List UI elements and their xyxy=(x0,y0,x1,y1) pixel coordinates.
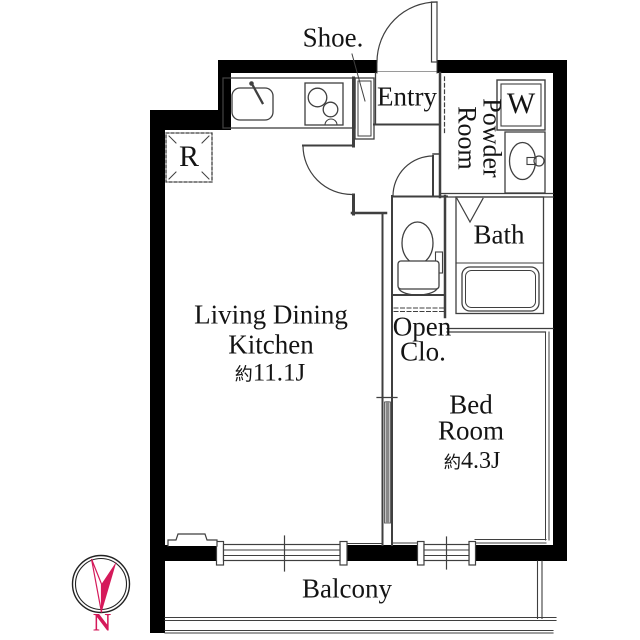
label-open-closet-line2: Clo. xyxy=(400,339,446,366)
bedroom-size-prefix: 約 xyxy=(444,453,461,472)
stove-burner-small xyxy=(323,102,338,117)
label-shoe-closet: Shoe. xyxy=(303,25,364,52)
wall-top-left xyxy=(218,60,377,73)
north-arrow-outline xyxy=(92,559,102,613)
wall-top-right xyxy=(437,60,567,73)
kitchen xyxy=(223,78,355,128)
ldk-door-swing-arc xyxy=(303,146,352,195)
toilet xyxy=(398,222,443,295)
label-entry: Entry xyxy=(377,84,437,111)
floor-plan: Shoe. Entry Powder Room W Bath Living Di… xyxy=(0,0,640,640)
faucet-icon xyxy=(252,84,263,103)
label-refrigerator: R xyxy=(179,142,199,172)
bedroom-window-cap-left xyxy=(418,542,425,566)
label-bedroom-size: 約4.3J xyxy=(444,449,501,473)
bedroom-window-cap-right xyxy=(469,542,476,566)
toilet-bowl xyxy=(402,222,433,264)
ldk-size-prefix: 約 xyxy=(235,365,253,385)
balcony-right-rail xyxy=(538,561,543,619)
ldk-window-cap-right xyxy=(340,542,347,566)
label-north: N xyxy=(93,611,111,636)
ldk-window-body xyxy=(224,545,341,561)
toilet-door-swing-arc xyxy=(393,156,433,196)
sliding-door xyxy=(385,402,391,523)
bathtub xyxy=(462,267,539,311)
label-ldk-line2: Kitchen xyxy=(228,332,313,359)
ldk-door xyxy=(303,146,352,195)
north-arrow-solid xyxy=(102,562,117,613)
vanity-counter xyxy=(505,132,545,193)
stove-grill xyxy=(325,119,337,125)
shoe-cabinet-inner xyxy=(358,81,371,136)
label-balcony: Balcony xyxy=(302,576,392,603)
wall-right xyxy=(553,60,567,561)
bedroom-size-value: 4.3J xyxy=(461,448,500,474)
bathtub-inner xyxy=(466,271,536,308)
label-bedroom-line2: Room xyxy=(438,418,504,445)
wall-bottom-b xyxy=(345,545,419,561)
wall-bottom-c xyxy=(473,545,567,561)
toilet-tank xyxy=(398,261,439,289)
bath-room xyxy=(456,197,544,314)
wall-bottom-a xyxy=(150,545,218,561)
bedroom-window xyxy=(418,537,476,569)
label-ldk-line1: Living Dining xyxy=(194,302,348,329)
bath-folding-door xyxy=(457,199,483,223)
stove-burner-large xyxy=(308,88,327,107)
label-powder-room: Powder Room xyxy=(454,98,503,177)
compass xyxy=(73,556,130,613)
toilet-door xyxy=(393,154,440,196)
label-ldk-size: 約11.1J xyxy=(235,361,306,386)
ldk-size-value: 11.1J xyxy=(253,360,306,387)
kitchen-sink xyxy=(232,88,273,120)
label-bedroom-line1: Bed xyxy=(449,392,493,419)
label-washing-machine: W xyxy=(507,89,535,119)
shutter-pocket xyxy=(168,534,217,546)
ldk-window xyxy=(217,536,348,571)
entry-door xyxy=(377,2,437,73)
entry-door-swing-arc xyxy=(377,2,437,62)
bath-room-outline xyxy=(456,197,544,314)
label-bath: Bath xyxy=(474,222,525,249)
entry-door-leaf xyxy=(432,2,438,62)
